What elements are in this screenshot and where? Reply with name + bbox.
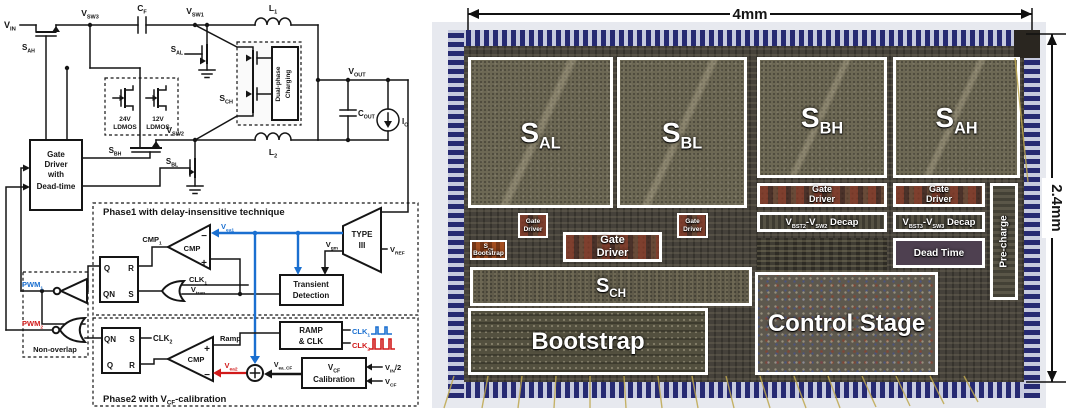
ramp-clk-label-1: RAMP [299,326,323,335]
vea1-label: Vea1 [221,222,234,234]
dimension-2.4mm: 2.4mm [1026,34,1066,382]
latch2-q: Q [107,361,113,370]
cout-label: COUT [358,109,376,121]
cmp2-text: CMP [188,355,205,364]
non-overlap-inverter [61,279,87,303]
vcf-label: VCF [385,377,397,389]
vcf-cal-label-2: Calibration [313,375,355,384]
latch1-qn: QN [103,290,115,299]
height-dimension-label: 2.4mm [1048,184,1065,232]
junction-dot [296,231,301,236]
vsw3-label: VSW3 [81,8,99,21]
sah-label: SAH [22,43,35,55]
transient-label-2: Detection [293,291,330,300]
width-dimension-label: 4mm [732,6,767,23]
latch2-s: S [129,335,135,344]
latch1-s: S [128,290,134,299]
gate-driver-label-2: Driver [44,160,67,169]
vout-label: VOUT [348,66,366,79]
sbh-label: SBH [109,146,122,158]
cmp1-label: CMP1 [142,235,162,247]
cmp1-minus: − [201,231,207,242]
l2-label: L2 [269,147,277,160]
phase1-or-gate [162,281,184,301]
load-arrow-head [384,121,392,128]
vref-label: VREF [390,245,405,257]
ldmos12-v-label: 12V [152,116,164,123]
clk1-out-label: CLK1 [352,327,370,339]
latch1-q: Q [104,264,110,273]
ramp-clk-stubs [342,330,350,343]
vgm-arrow [321,267,329,275]
vea2-arrow [213,369,221,378]
gate-driver-label-3: with [47,170,64,179]
vsw2-label: VSW2 [166,125,184,138]
cmp2-to-latch-wire [140,359,168,364]
cmp1-plus: + [201,258,207,269]
latch2-r: R [129,361,135,370]
figure-canvas: { "colors": { "phase1_blue": "#1a6fd0", … [0,0,1077,411]
vin2-label: VIN/2 [385,363,401,375]
ldmos-12v-symbol [146,86,166,110]
latch1-r: R [128,264,134,273]
vea-cf-label: Vea_CF [274,362,293,371]
sal-label: SAL [171,45,184,57]
non-overlap-label: Non-overlap [33,345,77,354]
cmp1-text: CMP [184,244,201,253]
vea2-label: Vea2 [224,361,237,373]
phase2-title: Phase2 with VCF-calibration [103,394,227,407]
ramp-label: Ramp [220,334,241,343]
dual-phase-label-1: Dual-phase [275,66,282,101]
ldmos24-t-label: LDMOS [113,124,137,131]
gate-driver-label-4: Dead-time [37,182,76,191]
sbl-label: SBL [166,157,179,169]
cmp1-plus-wire [210,259,240,294]
phase1-title: Phase1 with delay-insensitive technique [103,207,285,218]
vsw1-label: VSW1 [186,6,204,19]
l1-label: L1 [269,3,277,16]
ramp-clk-label-2: & CLK [299,337,324,346]
clk2-out-label: CLK2 [352,341,370,353]
nor-bubble [53,327,60,334]
die-annotations: 4mm 2.4mm [430,0,1077,411]
pwm1-label: PWM1 [22,280,43,292]
pwm2-label: PWM2 [22,319,43,331]
vea1-td-arrow [294,267,302,275]
circuit-schematic: VIN SAH VSW3 CF VSW1 L1 SAL 24V LDMOS 12… [0,0,430,411]
clk2-waveform-icon [369,339,395,349]
cmp2-minus: − [204,370,210,381]
pwm1-arrow [23,165,30,172]
ldmos-24v-symbol [113,86,133,110]
ldmos24-v-label: 24V [119,116,131,123]
latch2-qn: QN [104,335,116,344]
dimension-4mm: 4mm [468,5,1032,30]
vea1-arrow [211,229,219,238]
dual-phase-label-2: Charging [285,70,292,99]
vea-cf-arrow [264,370,272,379]
clk1-waveform-icon [371,327,392,334]
junction-dot [253,231,258,236]
inverter-bubble [54,288,61,295]
pwm2-arrow [23,184,30,191]
clk2-label: CLK2 [153,334,172,346]
type-iii-compensator [343,208,381,272]
sch-label: SCH [219,93,233,106]
transient-label-1: Transient [293,280,329,289]
junction-dots [40,23,390,296]
non-overlap-nor-gate [60,318,85,342]
mosfet-sah [36,25,60,36]
bond-wires [444,58,1028,408]
type-iii-label-1: TYPE [352,230,374,239]
vgm-label: Vgm [326,240,339,252]
cf-label: CF [137,3,147,16]
vin-label: VIN [4,20,16,33]
cmp1-to-latch-wire [138,247,168,266]
cmp2-plus: + [204,344,210,355]
gate-driver-label-1: Gate [47,150,65,159]
type-iii-label-2: III [359,241,366,250]
mosfet-sbh [82,140,162,158]
vtran-label: Vtran [191,285,205,297]
vea1-summer-arrow [250,356,260,364]
